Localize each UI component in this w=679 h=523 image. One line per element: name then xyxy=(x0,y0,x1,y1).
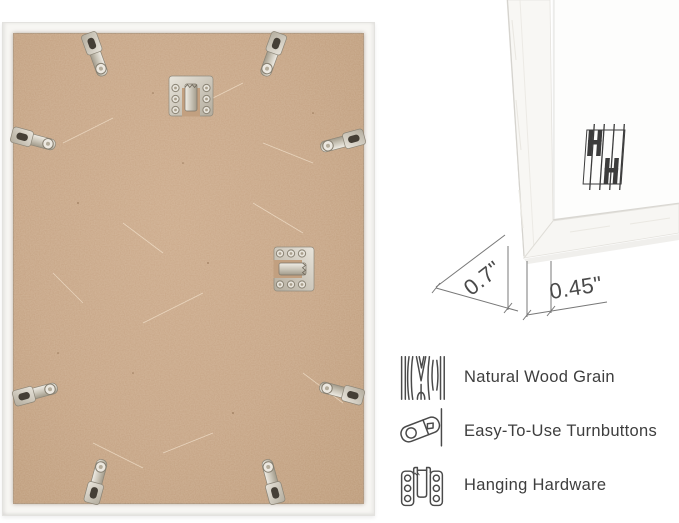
frame-corner-detail: 0.7" 0.45" xyxy=(430,0,679,330)
feature-item: Easy-To-Use Turnbuttons xyxy=(397,405,679,458)
frame-mat xyxy=(553,0,679,220)
feature-list: Natural Wood Grain Easy-To-Use Turnbutto… xyxy=(397,351,679,513)
product-image-canvas: 0.7" 0.45" Natural Wood Grain xyxy=(0,0,679,523)
feature-label: Hanging Hardware xyxy=(464,476,606,495)
depth-measurement-label: 0.7" xyxy=(459,256,506,301)
frame-backing-board xyxy=(13,33,364,504)
feature-label: Natural Wood Grain xyxy=(464,368,615,387)
feature-item: Hanging Hardware xyxy=(397,459,679,512)
hanging-hardware-icon xyxy=(397,461,447,511)
wood-grain-icon xyxy=(397,353,447,403)
feature-item: Natural Wood Grain xyxy=(397,351,679,404)
feature-label: Easy-To-Use Turnbuttons xyxy=(464,422,657,441)
face-width-measurement-label: 0.45" xyxy=(548,271,604,304)
frame-back-view xyxy=(2,22,375,516)
turnbutton-icon xyxy=(397,407,447,457)
